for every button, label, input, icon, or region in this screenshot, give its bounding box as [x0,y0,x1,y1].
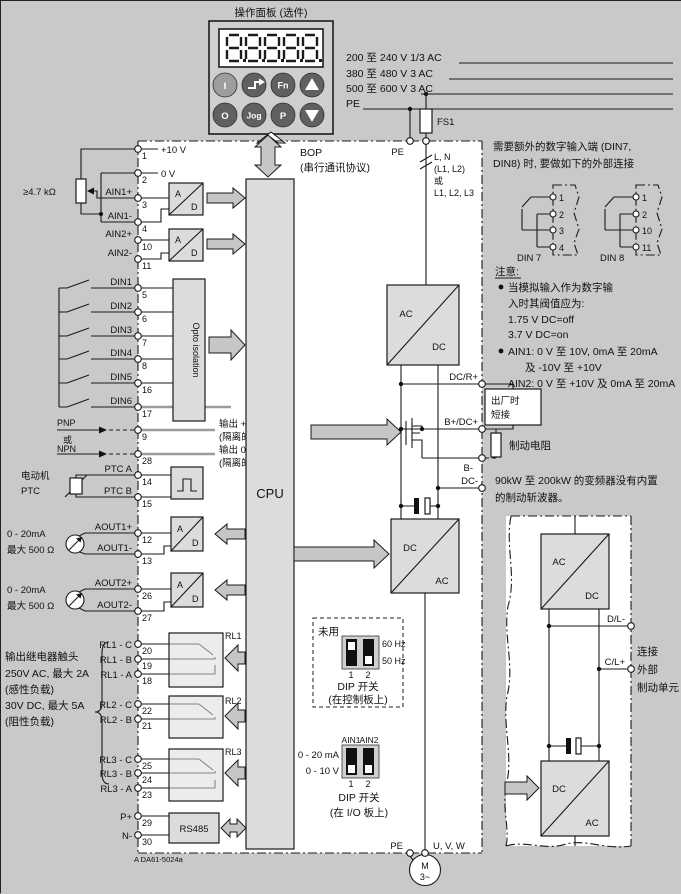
da-d: D [192,594,199,604]
mains-voltage-1: 200 至 240 V 1/3 AC [346,52,442,64]
jog-button-label: Jog [246,111,261,121]
fn-button[interactable]: Fn [271,73,295,97]
braking-resistor-symbol [491,433,501,457]
relay-note-4: 30V DC, 最大 5A [5,699,84,712]
dc-r-terminal [479,381,486,388]
terminal-label: PTC A [105,464,133,475]
rl1-label: RL1 [225,631,242,641]
dip2-ain1: AIN1 [342,735,361,745]
dl-terminal [628,623,635,630]
rl3-label: RL3 [225,747,242,757]
operator-panel: 操作面板 (选件) 8.8.8.8.8 I Fn O Jog P [209,6,333,143]
fuse-label: FS1 [437,117,454,128]
dip1-60hz: 60 Hz [382,639,406,649]
p-button[interactable]: P [271,103,295,127]
aout1-load: 最大 500 Ω [7,544,54,556]
terminal-number: 9 [142,432,147,442]
ptc-thermistor-symbol [70,478,82,494]
terminal-number: 13 [142,556,152,566]
dl-label: D/L- [607,614,625,625]
terminal-label: RL1 - B [100,655,132,666]
terminal-number: 8 [142,361,147,371]
terminal-label: N- [122,831,132,842]
external-rectifier-block: AC DC [541,534,609,609]
din8-t2: 2 [642,210,647,220]
rectifier-ac: AC [399,309,412,320]
da-converter-aout2: A D [171,573,203,607]
terminal-label: AIN2+ [105,229,132,240]
dip1-name: DIP 开关 [337,680,379,693]
terminal-number: 6 [142,314,147,324]
feed-label-4: L1, L2, L3 [434,188,474,198]
terminal-number: 22 [142,706,152,716]
note-1a: 当模拟输入作为数字输 [508,281,613,294]
up-button[interactable] [300,73,324,97]
terminal-number: 12 [142,535,152,545]
din8-t1: 1 [642,193,647,203]
dip1-unused: 未用 [318,626,339,638]
terminal-label: AIN1+ [105,187,132,198]
rl2-label: RL2 [225,696,242,706]
inverter-dc: DC [403,543,417,554]
b-dc-label: B+/DC+ [444,417,478,428]
b-dc-terminal [479,426,486,433]
da-a: A [177,524,183,534]
down-button[interactable] [300,103,324,127]
cpu-block: CPU [246,179,294,849]
note-2c: AIN2: 0 V 至 +10V 及 0mA 至 20mA [508,378,675,390]
note-1d: 3.7 V DC=on [508,329,569,341]
inverter-block: DC AC [391,519,459,593]
terminal-label: DIN5 [110,372,132,383]
terminal-label: DIN6 [110,396,132,407]
dip1-50hz: 50 Hz [382,656,406,666]
terminal-number: 19 [142,661,152,671]
terminal-number: 17 [142,409,152,419]
external-inverter-block: DC AC [541,761,609,836]
terminal-label: PTC B [104,486,132,497]
seven-segment-display: 8.8.8.8.8 [219,29,323,67]
terminal-number: 11 [142,261,151,271]
ext-brake-text-1: 连接 [637,645,658,658]
terminal-label: RL1 - A [100,670,132,681]
ext-inv-dc: DC [552,784,566,795]
b-minus-label: B- [464,463,474,474]
din78-intro-2: DIN8) 时, 要做如下的外部连接 [493,157,635,170]
terminal-label: RL2 - C [99,700,132,711]
din8-label: DIN 8 [600,253,624,264]
potentiometer-label: ≥4.7 kΩ [23,187,56,198]
terminal-label: RL3 - B [100,769,132,780]
relay-note-5: (阻性负载) [5,715,54,728]
dip2-n2: 2 [365,779,370,789]
dip2-n1: 1 [348,779,353,789]
din7-t2: 2 [559,210,564,220]
cpu-label: CPU [256,486,283,501]
dip1-location: (在控制板上) [328,693,388,706]
jumper-label-2: 短接 [491,409,511,421]
terminal-number: 21 [142,721,152,731]
din8-t10: 10 [642,226,652,236]
terminal-number: 16 [142,385,152,395]
terminal-label: AIN2- [108,248,132,259]
motor-ptc-label-1: 电动机 [21,470,50,482]
opto-label: Opto isolation [191,322,201,377]
dip1-n1: 1 [348,670,353,680]
fn-button-label: Fn [278,81,289,91]
uvw-terminal [422,850,429,857]
jumper-label-1: 出厂时 [491,395,520,407]
terminal-number: 15 [142,499,152,509]
ad-converter-ain2: A D [169,229,203,261]
note-title: 注意: [495,265,519,278]
note-2b: 及 -10V 至 +10V [525,362,602,374]
terminal-number: 10 [142,242,152,252]
inverter-ac: AC [435,576,448,587]
dip2-location: (在 I/O 板上) [330,806,388,819]
potentiometer-symbol [76,179,86,203]
dip1-n2: 2 [365,670,370,680]
pe-bottom-label: PE [390,841,403,852]
dc-r-label: DC/R+ [449,372,478,383]
relay-note-3: (感性负载) [5,683,54,696]
terminal-number: 3 [142,200,147,210]
da-a: A [177,580,183,590]
dip2-v: 0 - 10 V [306,766,340,777]
ext-brake-text-2: 外部 [637,663,658,676]
ad-d: D [191,202,198,212]
terminal-number: 20 [142,646,152,656]
terminal-label: RL2 - B [100,715,132,726]
rs485-label: RS485 [179,824,208,835]
mains-terminal [423,138,430,145]
uvw-label: U, V, W [433,841,465,852]
ext-inv-ac: AC [585,818,598,829]
terminal-number: 1 [142,151,147,161]
ptc-comparator-block [171,467,203,499]
terminal-label: AOUT2+ [95,578,133,589]
terminal-number: 26 [142,591,152,601]
terminal-label: RL1 - C [99,640,132,651]
panel-title: 操作面板 (选件) [235,6,308,19]
pnp-label: PNP [57,418,76,428]
din7-t1: 1 [559,193,564,203]
terminal-number: 30 [142,837,152,847]
ad-a: A [175,189,181,199]
terminal-label: RL3 - C [99,755,132,766]
mains-voltage-3: 500 至 600 V 3 AC [346,83,433,95]
terminal-label: DIN2 [110,301,132,312]
terminal-label: +10 V [161,145,187,156]
terminal-label: 0 V [161,169,176,180]
jog-button[interactable]: Jog [242,103,266,127]
bop-sublabel: (串行通讯协议) [300,161,370,174]
relay-note-2: 250V AC, 最大 2A [5,667,89,680]
aout1-range: 0 - 20mA [7,529,46,540]
terminal-number: 18 [142,676,152,686]
terminal-number: 4 [142,224,147,234]
terminal-label: AIN1- [108,211,132,222]
dip2-ain2: AIN2 [360,735,379,745]
terminal-number: 29 [142,818,152,828]
feed-label-2: (L1, L2) [434,164,465,174]
cl-terminal [628,666,635,673]
relay-note-1: 输出继电器触头 [5,650,79,663]
terminal-label: P+ [120,812,132,823]
note-2a: AIN1: 0 V 至 10V, 0mA 至 20mA [508,346,658,358]
chopper-note-2: 的制动斩波器。 [495,491,569,504]
rectifier-dc: DC [432,342,446,353]
rectifier-block: AC DC [387,285,459,365]
pe-bottom-terminal [407,850,414,857]
terminal-number: 7 [142,338,147,348]
bop-label: BOP [300,147,322,159]
terminal-number: 24 [142,775,152,785]
opto-isolation-block: Opto isolation [173,279,205,421]
feed-label-3: 或 [434,175,443,186]
run-button-label: I [224,81,227,92]
din7-t4: 4 [559,243,564,253]
terminal-label: RL3 - A [100,784,132,795]
p-button-label: P [280,111,287,122]
terminal-number: 14 [142,477,152,487]
ext-rect-dc: DC [585,591,599,602]
motor-m: M [421,861,429,871]
terminal-number: 27 [142,613,152,623]
mains-pe-label: PE [346,98,360,110]
aout2-load: 最大 500 Ω [7,600,54,612]
din8-t11: 11 [642,243,651,253]
terminal-number: 23 [142,790,152,800]
run-button[interactable]: I [213,73,237,97]
terminal-label: DIN1 [110,277,132,288]
terminal-number: 28 [142,456,152,466]
motor-ptc-label-2: PTC [21,486,40,497]
note-1c: 1.75 V DC=off [508,314,574,326]
aout2-range: 0 - 20mA [7,585,46,596]
ext-brake-text-3: 制动单元 [637,681,679,694]
reverse-direction-button[interactable] [242,73,266,97]
braking-resistor-label: 制动电阻 [509,439,551,452]
terminal-number: 2 [142,175,147,185]
dc-minus-terminal [479,485,486,492]
ext-rect-ac: AC [552,557,565,568]
pe-top-label: PE [391,147,404,158]
off-button[interactable]: O [213,103,237,127]
off-button-label: O [221,111,228,122]
cl-label: C/L+ [605,657,626,668]
drawing-number: A DA61-5024a [134,855,184,864]
da-d: D [192,538,199,548]
b-minus-terminal [479,455,486,462]
chopper-note-1: 90kW 至 200kW 的变频器没有内置 [495,474,658,487]
din7-label: DIN 7 [517,253,541,264]
terminal-label: AOUT1- [97,543,132,554]
terminal-label: AOUT1+ [95,522,133,533]
ad-converter-ain1: A D [169,183,203,215]
note-1b: 入时其阀值应为: [508,297,584,310]
ad-a: A [175,235,181,245]
din7-t3: 3 [559,226,564,236]
mains-voltage-2: 380 至 480 V 3 AC [346,68,433,80]
motor-3ph: 3~ [420,872,430,882]
rs485-block: RS485 [169,813,219,843]
terminal-label: DIN4 [110,348,132,359]
pe-top-terminal [407,138,414,145]
da-converter-aout1: A D [171,517,203,551]
dip2-name: DIP 开关 [338,791,380,804]
terminal-number: 5 [142,290,147,300]
ad-d: D [191,248,198,258]
din78-intro-1: 需要额外的数字输入端 (DIN7, [493,140,631,153]
terminal-number: 25 [142,761,152,771]
dip2-ma: 0 - 20 mA [298,750,340,761]
fuse-symbol [420,109,432,133]
terminal-label: AOUT2- [97,600,132,611]
feed-label-1: L, N [434,152,451,162]
terminal-label: DIN3 [110,325,132,336]
npn-label: NPN [57,444,76,454]
wiring-diagram: 200 至 240 V 1/3 AC 380 至 480 V 3 AC 500 … [1,1,681,894]
scanned-wiring-diagram-page: 200 至 240 V 1/3 AC 380 至 480 V 3 AC 500 … [0,0,681,893]
dc-minus-label: DC- [461,476,478,487]
